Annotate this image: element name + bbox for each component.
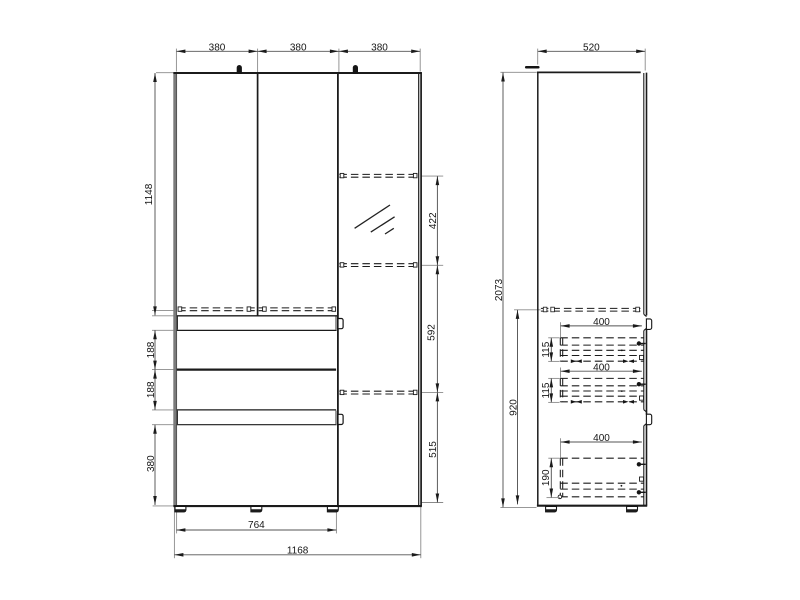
svg-text:2073: 2073: [494, 278, 505, 301]
svg-text:520: 520: [583, 43, 600, 54]
svg-text:115: 115: [541, 341, 552, 357]
svg-text:400: 400: [593, 363, 610, 374]
svg-text:400: 400: [593, 317, 610, 328]
svg-text:422: 422: [428, 212, 439, 229]
svg-text:380: 380: [371, 43, 388, 54]
svg-text:764: 764: [248, 520, 265, 531]
svg-text:115: 115: [541, 382, 552, 398]
svg-text:380: 380: [146, 455, 157, 472]
svg-text:380: 380: [209, 43, 226, 54]
svg-text:920: 920: [509, 399, 520, 416]
svg-text:380: 380: [290, 43, 307, 54]
svg-text:400: 400: [593, 433, 610, 444]
svg-text:1148: 1148: [144, 183, 155, 205]
svg-text:515: 515: [428, 441, 439, 458]
svg-text:190: 190: [541, 469, 552, 486]
svg-text:188: 188: [146, 341, 157, 358]
svg-text:188: 188: [146, 381, 157, 398]
svg-text:592: 592: [426, 324, 437, 341]
svg-text:1168: 1168: [287, 545, 309, 556]
